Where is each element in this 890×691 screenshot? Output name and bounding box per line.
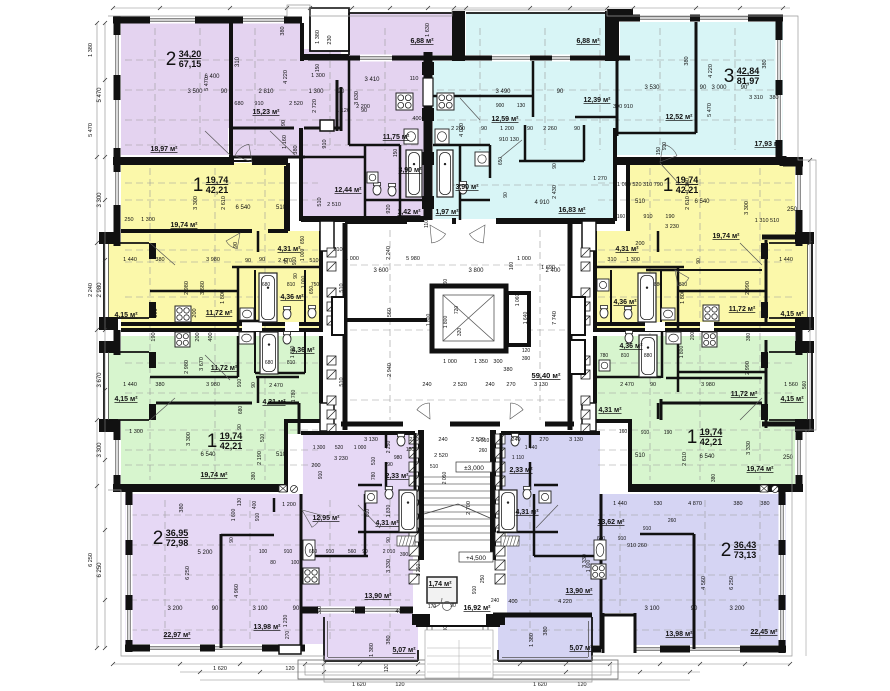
svg-text:3 200: 3 200 — [167, 606, 183, 612]
svg-text:380: 380 — [733, 501, 742, 507]
svg-text:90: 90 — [281, 120, 287, 126]
svg-text:530: 530 — [654, 501, 663, 507]
svg-text:16,92 м²: 16,92 м² — [464, 605, 492, 612]
svg-text:2 470: 2 470 — [269, 383, 283, 389]
svg-text:1 440: 1 440 — [779, 257, 793, 263]
svg-text:1 300: 1 300 — [141, 217, 155, 223]
svg-text:1 200: 1 200 — [282, 502, 296, 508]
svg-text:4,36 м²: 4,36 м² — [613, 299, 637, 306]
svg-text:5 470: 5 470 — [97, 87, 103, 103]
svg-text:680: 680 — [234, 101, 243, 107]
svg-text:380: 380 — [769, 95, 778, 101]
svg-text:1 230: 1 230 — [283, 615, 289, 628]
svg-text:260: 260 — [479, 448, 488, 454]
svg-text:2 520: 2 520 — [453, 382, 467, 388]
svg-text:12,59 м²: 12,59 м² — [492, 116, 520, 123]
svg-text:90: 90 — [221, 89, 228, 95]
svg-text:13,62 м²: 13,62 м² — [598, 519, 626, 526]
svg-text:270: 270 — [409, 437, 418, 443]
svg-text:4,36 м²: 4,36 м² — [619, 343, 643, 350]
svg-text:190: 190 — [664, 430, 673, 436]
svg-text:120: 120 — [577, 682, 586, 688]
svg-text:13,90 м²: 13,90 м² — [365, 593, 393, 600]
svg-text:3 300: 3 300 — [744, 201, 750, 215]
svg-text:42,21: 42,21 — [700, 437, 723, 447]
svg-text:6 540: 6 540 — [699, 454, 715, 460]
svg-text:90: 90 — [552, 163, 558, 169]
svg-text:160: 160 — [443, 279, 449, 288]
svg-text:11,72 м²: 11,72 м² — [729, 306, 756, 313]
svg-text:4,15 м²: 4,15 м² — [780, 311, 804, 318]
svg-text:1 000: 1 000 — [300, 249, 306, 262]
svg-text:4,31 м²: 4,31 м² — [615, 246, 639, 253]
svg-text:4 220: 4 220 — [558, 599, 572, 605]
svg-text:380: 380 — [746, 333, 752, 342]
svg-text:510: 510 — [333, 247, 342, 253]
svg-text:3 330: 3 330 — [746, 441, 752, 455]
svg-text:16,83 м²: 16,83 м² — [559, 207, 587, 214]
svg-text:6 250: 6 250 — [729, 576, 735, 590]
svg-text:42,84: 42,84 — [737, 66, 760, 76]
svg-text:510: 510 — [276, 452, 287, 458]
svg-text:±3,000: ±3,000 — [464, 465, 484, 472]
svg-text:3 800: 3 800 — [468, 268, 484, 274]
svg-text:3 980: 3 980 — [206, 257, 220, 263]
svg-text:900: 900 — [496, 103, 505, 109]
svg-text:260: 260 — [668, 518, 677, 524]
svg-text:3 100: 3 100 — [644, 606, 660, 612]
svg-text:42,21: 42,21 — [206, 185, 229, 195]
svg-text:90: 90 — [527, 126, 533, 132]
svg-text:3 600: 3 600 — [373, 268, 389, 274]
svg-text:90: 90 — [481, 126, 487, 132]
svg-text:90: 90 — [696, 258, 702, 264]
svg-text:19,74: 19,74 — [700, 427, 723, 437]
svg-text:5 470: 5 470 — [707, 103, 713, 117]
svg-text:19,74 м²: 19,74 м² — [713, 233, 741, 240]
svg-text:6 250: 6 250 — [88, 553, 94, 567]
svg-text:2 010: 2 010 — [383, 549, 396, 555]
svg-text:12,95 м²: 12,95 м² — [313, 515, 341, 522]
svg-text:300: 300 — [493, 359, 502, 365]
svg-text:2 720: 2 720 — [312, 99, 318, 113]
svg-text:1 010: 1 010 — [477, 438, 490, 444]
svg-text:910: 910 — [641, 430, 650, 436]
svg-text:3 680: 3 680 — [200, 281, 206, 295]
svg-text:910: 910 — [643, 214, 652, 220]
svg-text:650: 650 — [300, 236, 306, 245]
svg-text:2 810: 2 810 — [258, 89, 274, 95]
svg-text:4,31 м²: 4,31 м² — [598, 407, 622, 414]
svg-text:3 630: 3 630 — [354, 91, 360, 105]
svg-text:1 440: 1 440 — [123, 382, 137, 388]
svg-text:1 000 520 310 790: 1 000 520 310 790 — [617, 182, 663, 188]
svg-text:910: 910 — [237, 379, 243, 388]
svg-text:810: 810 — [287, 282, 296, 288]
svg-text:2 260: 2 260 — [543, 126, 557, 132]
svg-text:1 300: 1 300 — [129, 429, 143, 435]
svg-text:15,23 м²: 15,23 м² — [253, 109, 281, 116]
svg-text:1 350: 1 350 — [474, 359, 488, 365]
svg-text:320: 320 — [457, 328, 463, 337]
svg-text:910: 910 — [326, 549, 335, 555]
svg-text:200: 200 — [311, 463, 320, 469]
svg-text:6 540: 6 540 — [235, 205, 251, 211]
svg-text:250: 250 — [124, 217, 133, 223]
svg-text:230: 230 — [327, 35, 333, 44]
svg-text:160: 160 — [617, 214, 626, 220]
svg-text:120: 120 — [395, 682, 404, 688]
svg-text:13,98 м²: 13,98 м² — [254, 624, 282, 631]
svg-text:910: 910 — [472, 586, 478, 595]
svg-text:1 690: 1 690 — [541, 265, 555, 271]
svg-text:1 630: 1 630 — [425, 23, 431, 37]
svg-text:5,07 м²: 5,07 м² — [392, 647, 416, 654]
svg-text:1 800: 1 800 — [290, 346, 296, 359]
svg-text:380: 380 — [503, 367, 512, 373]
svg-text:4,31 м²: 4,31 м² — [515, 509, 539, 516]
svg-text:1 300: 1 300 — [626, 257, 640, 263]
svg-text:1 000: 1 000 — [443, 359, 457, 365]
svg-text:4 870: 4 870 — [688, 501, 702, 507]
svg-text:11,72 м²: 11,72 м² — [211, 365, 238, 372]
svg-text:400: 400 — [252, 501, 258, 510]
svg-text:7 740: 7 740 — [552, 311, 558, 325]
svg-text:67,15: 67,15 — [179, 59, 202, 69]
svg-text:4,15 м²: 4,15 м² — [114, 396, 138, 403]
svg-text:19,74 м²: 19,74 м² — [747, 466, 775, 473]
svg-text:1 200: 1 200 — [500, 126, 514, 132]
svg-text:910: 910 — [643, 526, 652, 532]
svg-text:4 020: 4 020 — [459, 123, 465, 137]
svg-text:2 240: 2 240 — [386, 246, 392, 260]
svg-text:2,33 м²: 2,33 м² — [385, 473, 409, 480]
svg-text:3 490: 3 490 — [495, 89, 511, 95]
svg-text:1 000: 1 000 — [354, 445, 367, 451]
svg-text:80: 80 — [270, 560, 276, 566]
svg-text:90: 90 — [338, 89, 345, 95]
svg-text:4,36 м²: 4,36 м² — [280, 294, 304, 301]
svg-text:1 250: 1 250 — [416, 564, 422, 577]
svg-text:240: 240 — [422, 382, 431, 388]
svg-text:3: 3 — [724, 66, 735, 87]
svg-text:390: 390 — [522, 356, 531, 362]
svg-text:3 230: 3 230 — [334, 456, 348, 462]
svg-text:11,72 м²: 11,72 м² — [206, 310, 233, 317]
svg-text:90: 90 — [387, 462, 393, 468]
svg-text:1 300: 1 300 — [768, 422, 782, 428]
svg-text:13,98 м²: 13,98 м² — [666, 631, 694, 638]
svg-text:1 160: 1 160 — [685, 178, 691, 192]
svg-text:4,31 м²: 4,31 м² — [262, 399, 286, 406]
svg-text:2 050: 2 050 — [442, 472, 448, 485]
svg-text:750: 750 — [311, 282, 320, 288]
svg-text:1 800: 1 800 — [443, 316, 449, 329]
svg-text:18,97 м²: 18,97 м² — [151, 146, 179, 153]
svg-text:380: 380 — [711, 474, 717, 483]
svg-text:120: 120 — [522, 348, 531, 354]
svg-text:400: 400 — [395, 609, 404, 615]
svg-text:170: 170 — [428, 604, 437, 610]
svg-text:90: 90 — [386, 537, 392, 543]
svg-text:1 440: 1 440 — [613, 501, 627, 507]
svg-text:3 670: 3 670 — [97, 372, 103, 388]
svg-text:810: 810 — [621, 353, 630, 359]
svg-text:90: 90 — [362, 549, 368, 555]
svg-text:1: 1 — [663, 175, 674, 196]
svg-text:920: 920 — [386, 204, 392, 213]
svg-text:510: 510 — [339, 377, 345, 386]
svg-text:380: 380 — [155, 382, 164, 388]
svg-text:1 620: 1 620 — [213, 666, 227, 672]
svg-text:2 560: 2 560 — [387, 308, 393, 322]
svg-text:1,42 м²: 1,42 м² — [397, 209, 421, 216]
svg-text:380: 380 — [762, 59, 768, 68]
svg-text:160: 160 — [619, 429, 628, 435]
svg-text:90: 90 — [741, 85, 748, 91]
svg-text:2 700: 2 700 — [466, 501, 472, 515]
svg-text:90: 90 — [212, 606, 219, 612]
svg-text:90: 90 — [574, 126, 580, 132]
svg-text:90: 90 — [650, 382, 656, 388]
svg-text:5 470: 5 470 — [88, 123, 94, 137]
svg-text:560: 560 — [802, 381, 808, 390]
svg-text:3,90 м²: 3,90 м² — [398, 167, 422, 174]
svg-text:120: 120 — [384, 664, 390, 673]
svg-text:3 980: 3 980 — [701, 382, 715, 388]
svg-text:2 520: 2 520 — [434, 453, 448, 459]
svg-text:810: 810 — [287, 360, 296, 366]
svg-text:4,15 м²: 4,15 м² — [114, 312, 138, 319]
svg-text:680: 680 — [238, 406, 244, 415]
svg-text:3 980: 3 980 — [206, 382, 220, 388]
svg-text:4 220: 4 220 — [708, 64, 714, 78]
svg-text:110: 110 — [410, 76, 419, 82]
svg-text:110: 110 — [424, 220, 430, 228]
svg-text:4 220: 4 220 — [283, 70, 289, 84]
svg-text:510: 510 — [317, 197, 323, 206]
svg-text:90: 90 — [245, 258, 251, 264]
svg-text:4 220: 4 220 — [351, 609, 365, 615]
svg-text:1 440: 1 440 — [123, 257, 137, 263]
svg-text:1 300: 1 300 — [308, 89, 324, 95]
svg-text:3 300: 3 300 — [97, 192, 103, 208]
svg-text:120: 120 — [285, 666, 294, 672]
svg-text:2 610: 2 610 — [682, 452, 688, 466]
svg-text:6 540: 6 540 — [694, 199, 710, 205]
svg-text:3 130: 3 130 — [364, 437, 378, 443]
svg-text:90: 90 — [293, 273, 299, 279]
svg-text:880: 880 — [654, 282, 663, 288]
svg-text:2 510: 2 510 — [327, 202, 341, 208]
svg-text:5 980: 5 980 — [406, 256, 420, 262]
svg-text:1 300: 1 300 — [311, 73, 325, 79]
svg-text:130: 130 — [517, 103, 526, 109]
svg-text:1 600: 1 600 — [586, 560, 592, 573]
svg-text:3 000: 3 000 — [711, 85, 727, 91]
svg-text:3 130: 3 130 — [569, 437, 583, 443]
svg-text:2 990: 2 990 — [745, 281, 751, 295]
svg-text:150: 150 — [315, 64, 321, 73]
svg-text:1 060: 1 060 — [515, 294, 521, 307]
svg-text:190: 190 — [151, 332, 157, 341]
svg-text:1 800: 1 800 — [220, 290, 226, 304]
svg-text:5,07 м²: 5,07 м² — [569, 645, 593, 652]
svg-text:3 100: 3 100 — [252, 606, 268, 612]
svg-text:200: 200 — [635, 241, 644, 247]
svg-text:400: 400 — [412, 116, 421, 122]
svg-text:510: 510 — [339, 283, 345, 292]
svg-text:2 520: 2 520 — [289, 101, 303, 107]
svg-text:2 200: 2 200 — [356, 104, 370, 110]
svg-text:910: 910 — [292, 257, 298, 266]
svg-text:17,93 м²: 17,93 м² — [755, 141, 783, 148]
svg-text:1 380: 1 380 — [529, 633, 535, 647]
svg-text:980: 980 — [394, 455, 403, 461]
svg-text:2: 2 — [153, 528, 164, 549]
svg-text:90: 90 — [259, 257, 265, 263]
svg-text:780: 780 — [600, 353, 609, 359]
svg-text:1 110: 1 110 — [512, 455, 524, 461]
svg-text:130: 130 — [406, 447, 415, 453]
svg-text:690: 690 — [597, 536, 606, 542]
svg-text:310: 310 — [607, 257, 616, 263]
svg-text:19,74 м²: 19,74 м² — [171, 222, 199, 229]
svg-text:100: 100 — [291, 560, 300, 566]
svg-text:1: 1 — [207, 431, 218, 452]
svg-text:3 500: 3 500 — [187, 89, 203, 95]
svg-text:1 270: 1 270 — [593, 176, 607, 182]
svg-text:90: 90 — [237, 424, 243, 430]
svg-text:510: 510 — [309, 258, 318, 264]
svg-text:73,13: 73,13 — [734, 550, 757, 560]
svg-text:3 330: 3 330 — [386, 559, 392, 573]
svg-text:2 240: 2 240 — [88, 283, 94, 297]
svg-text:910: 910 — [254, 101, 263, 107]
svg-text:390: 390 — [400, 552, 409, 558]
svg-text:2 470: 2 470 — [278, 258, 292, 264]
svg-text:130: 130 — [237, 498, 243, 507]
svg-text:880: 880 — [644, 353, 653, 359]
svg-text:240: 240 — [491, 598, 500, 604]
svg-text:90: 90 — [691, 606, 698, 612]
svg-text:250: 250 — [480, 575, 486, 584]
svg-text:2 940: 2 940 — [387, 363, 393, 377]
svg-text:59,40 м²: 59,40 м² — [532, 371, 561, 380]
svg-text:780: 780 — [371, 472, 377, 481]
svg-text:3 670: 3 670 — [199, 357, 205, 371]
svg-text:22,45 м²: 22,45 м² — [751, 629, 779, 636]
svg-text:510: 510 — [276, 205, 287, 211]
svg-text:12,44 м²: 12,44 м² — [335, 187, 363, 194]
svg-text:1,97 м²: 1,97 м² — [435, 209, 459, 216]
svg-text:1 120: 1 120 — [336, 108, 350, 114]
svg-text:72,98: 72,98 — [166, 538, 189, 548]
svg-text:4 560: 4 560 — [701, 576, 707, 590]
svg-text:5 470: 5 470 — [204, 77, 210, 91]
svg-text:90: 90 — [450, 603, 456, 609]
svg-text:310: 310 — [235, 56, 241, 67]
svg-text:11,75 м²: 11,75 м² — [383, 134, 410, 141]
svg-text:240: 240 — [511, 437, 520, 443]
svg-text:2: 2 — [166, 49, 177, 70]
svg-text:4,15 м²: 4,15 м² — [780, 396, 804, 403]
svg-text:100: 100 — [259, 549, 268, 555]
svg-text:6,88 м²: 6,88 м² — [576, 38, 600, 45]
svg-text:200: 200 — [195, 332, 201, 341]
svg-text:650: 650 — [498, 157, 504, 166]
svg-text:1 620: 1 620 — [533, 682, 547, 688]
svg-text:1: 1 — [687, 427, 698, 448]
svg-text:1 380: 1 380 — [369, 643, 375, 657]
svg-text:2 610: 2 610 — [221, 196, 227, 210]
svg-text:3,90 м²: 3,90 м² — [455, 184, 479, 191]
svg-text:22,97 м²: 22,97 м² — [164, 632, 192, 639]
svg-text:4 960: 4 960 — [234, 584, 240, 598]
svg-text:90: 90 — [229, 537, 235, 543]
svg-text:510: 510 — [430, 464, 439, 470]
svg-text:1 830: 1 830 — [386, 505, 392, 518]
svg-text:1 310 510: 1 310 510 — [755, 218, 779, 224]
svg-text:270: 270 — [539, 437, 548, 443]
svg-text:190: 190 — [153, 308, 159, 317]
svg-text:2 980: 2 980 — [97, 282, 103, 298]
svg-text:400: 400 — [508, 599, 517, 605]
svg-text:3 310: 3 310 — [749, 95, 763, 101]
svg-text:510: 510 — [260, 434, 266, 443]
svg-text:680: 680 — [265, 360, 274, 366]
svg-text:910: 910 — [284, 549, 293, 555]
svg-text:240: 240 — [438, 437, 447, 443]
svg-text:3 130: 3 130 — [534, 382, 548, 388]
svg-text:2,33 м²: 2,33 м² — [509, 467, 533, 474]
svg-text:910: 910 — [618, 536, 627, 542]
svg-text:36,43: 36,43 — [734, 540, 757, 550]
svg-text:1 000: 1 000 — [517, 256, 531, 262]
svg-text:19,74: 19,74 — [206, 175, 229, 185]
svg-text:2 980: 2 980 — [184, 360, 190, 374]
svg-text:2 250: 2 250 — [386, 441, 392, 454]
svg-text:270: 270 — [285, 631, 291, 640]
svg-text:+4,500: +4,500 — [466, 555, 486, 562]
svg-text:1 440: 1 440 — [525, 445, 538, 451]
svg-text:910: 910 — [318, 471, 324, 480]
svg-text:380: 380 — [386, 635, 392, 644]
svg-text:3 300: 3 300 — [186, 432, 192, 446]
svg-text:1: 1 — [193, 175, 204, 196]
svg-text:11,72 м²: 11,72 м² — [731, 391, 758, 398]
svg-text:380: 380 — [543, 626, 549, 635]
svg-text:190: 190 — [665, 214, 674, 220]
svg-text:2 610: 2 610 — [685, 196, 691, 210]
svg-text:910 260: 910 260 — [627, 543, 647, 549]
svg-text:3 530: 3 530 — [644, 85, 660, 91]
svg-text:6 250: 6 250 — [97, 562, 103, 578]
svg-text:19,74 м²: 19,74 м² — [201, 472, 229, 479]
svg-text:520: 520 — [335, 445, 344, 451]
svg-text:1 160: 1 160 — [282, 135, 288, 149]
svg-text:510: 510 — [371, 457, 377, 466]
svg-text:2 980: 2 980 — [184, 281, 190, 295]
svg-text:1 800: 1 800 — [679, 346, 685, 359]
svg-text:380: 380 — [293, 145, 299, 154]
svg-text:4,31 м²: 4,31 м² — [277, 246, 301, 253]
svg-text:680: 680 — [262, 282, 271, 288]
svg-text:4 910: 4 910 — [534, 200, 550, 206]
svg-text:250: 250 — [787, 207, 798, 213]
svg-text:19,74: 19,74 — [220, 431, 243, 441]
svg-text:160: 160 — [509, 262, 515, 271]
